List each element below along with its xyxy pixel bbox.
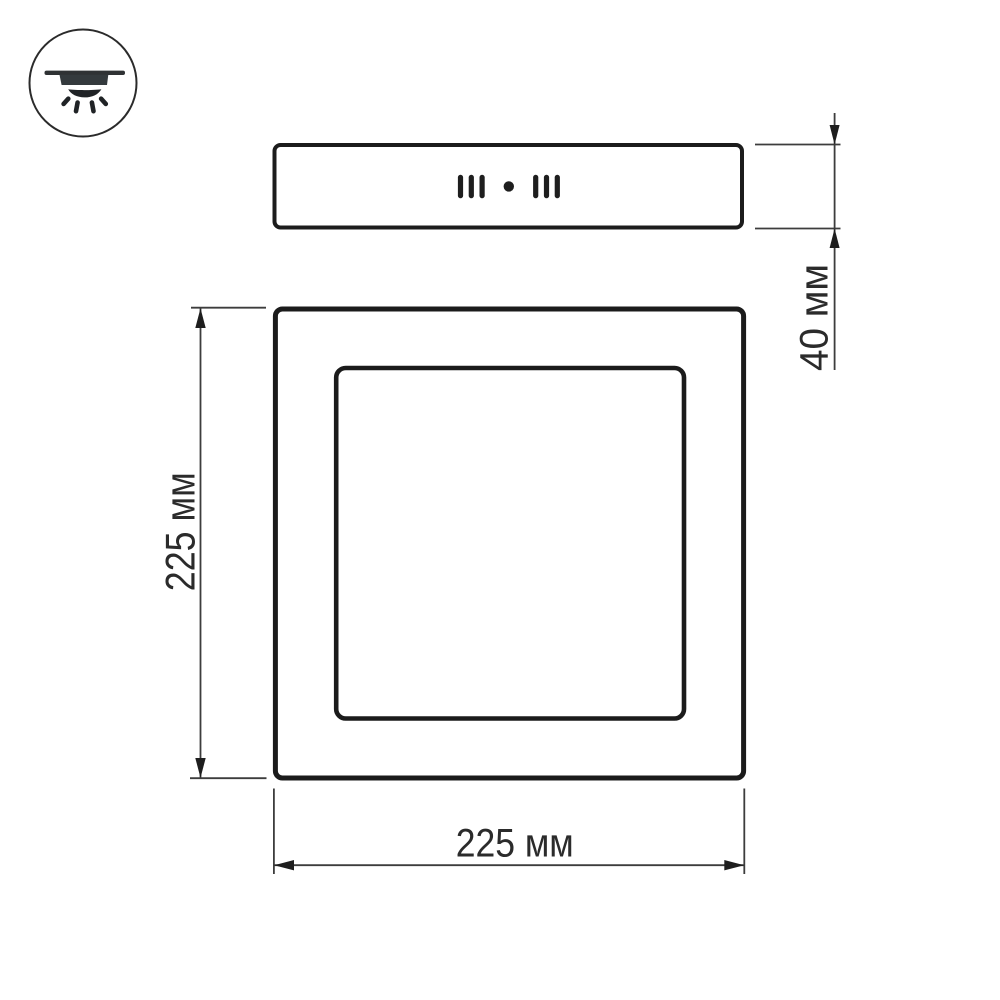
svg-text:225 мм: 225 мм	[456, 822, 574, 866]
svg-text:225 мм: 225 мм	[157, 472, 204, 591]
svg-text:40 мм: 40 мм	[793, 264, 837, 371]
